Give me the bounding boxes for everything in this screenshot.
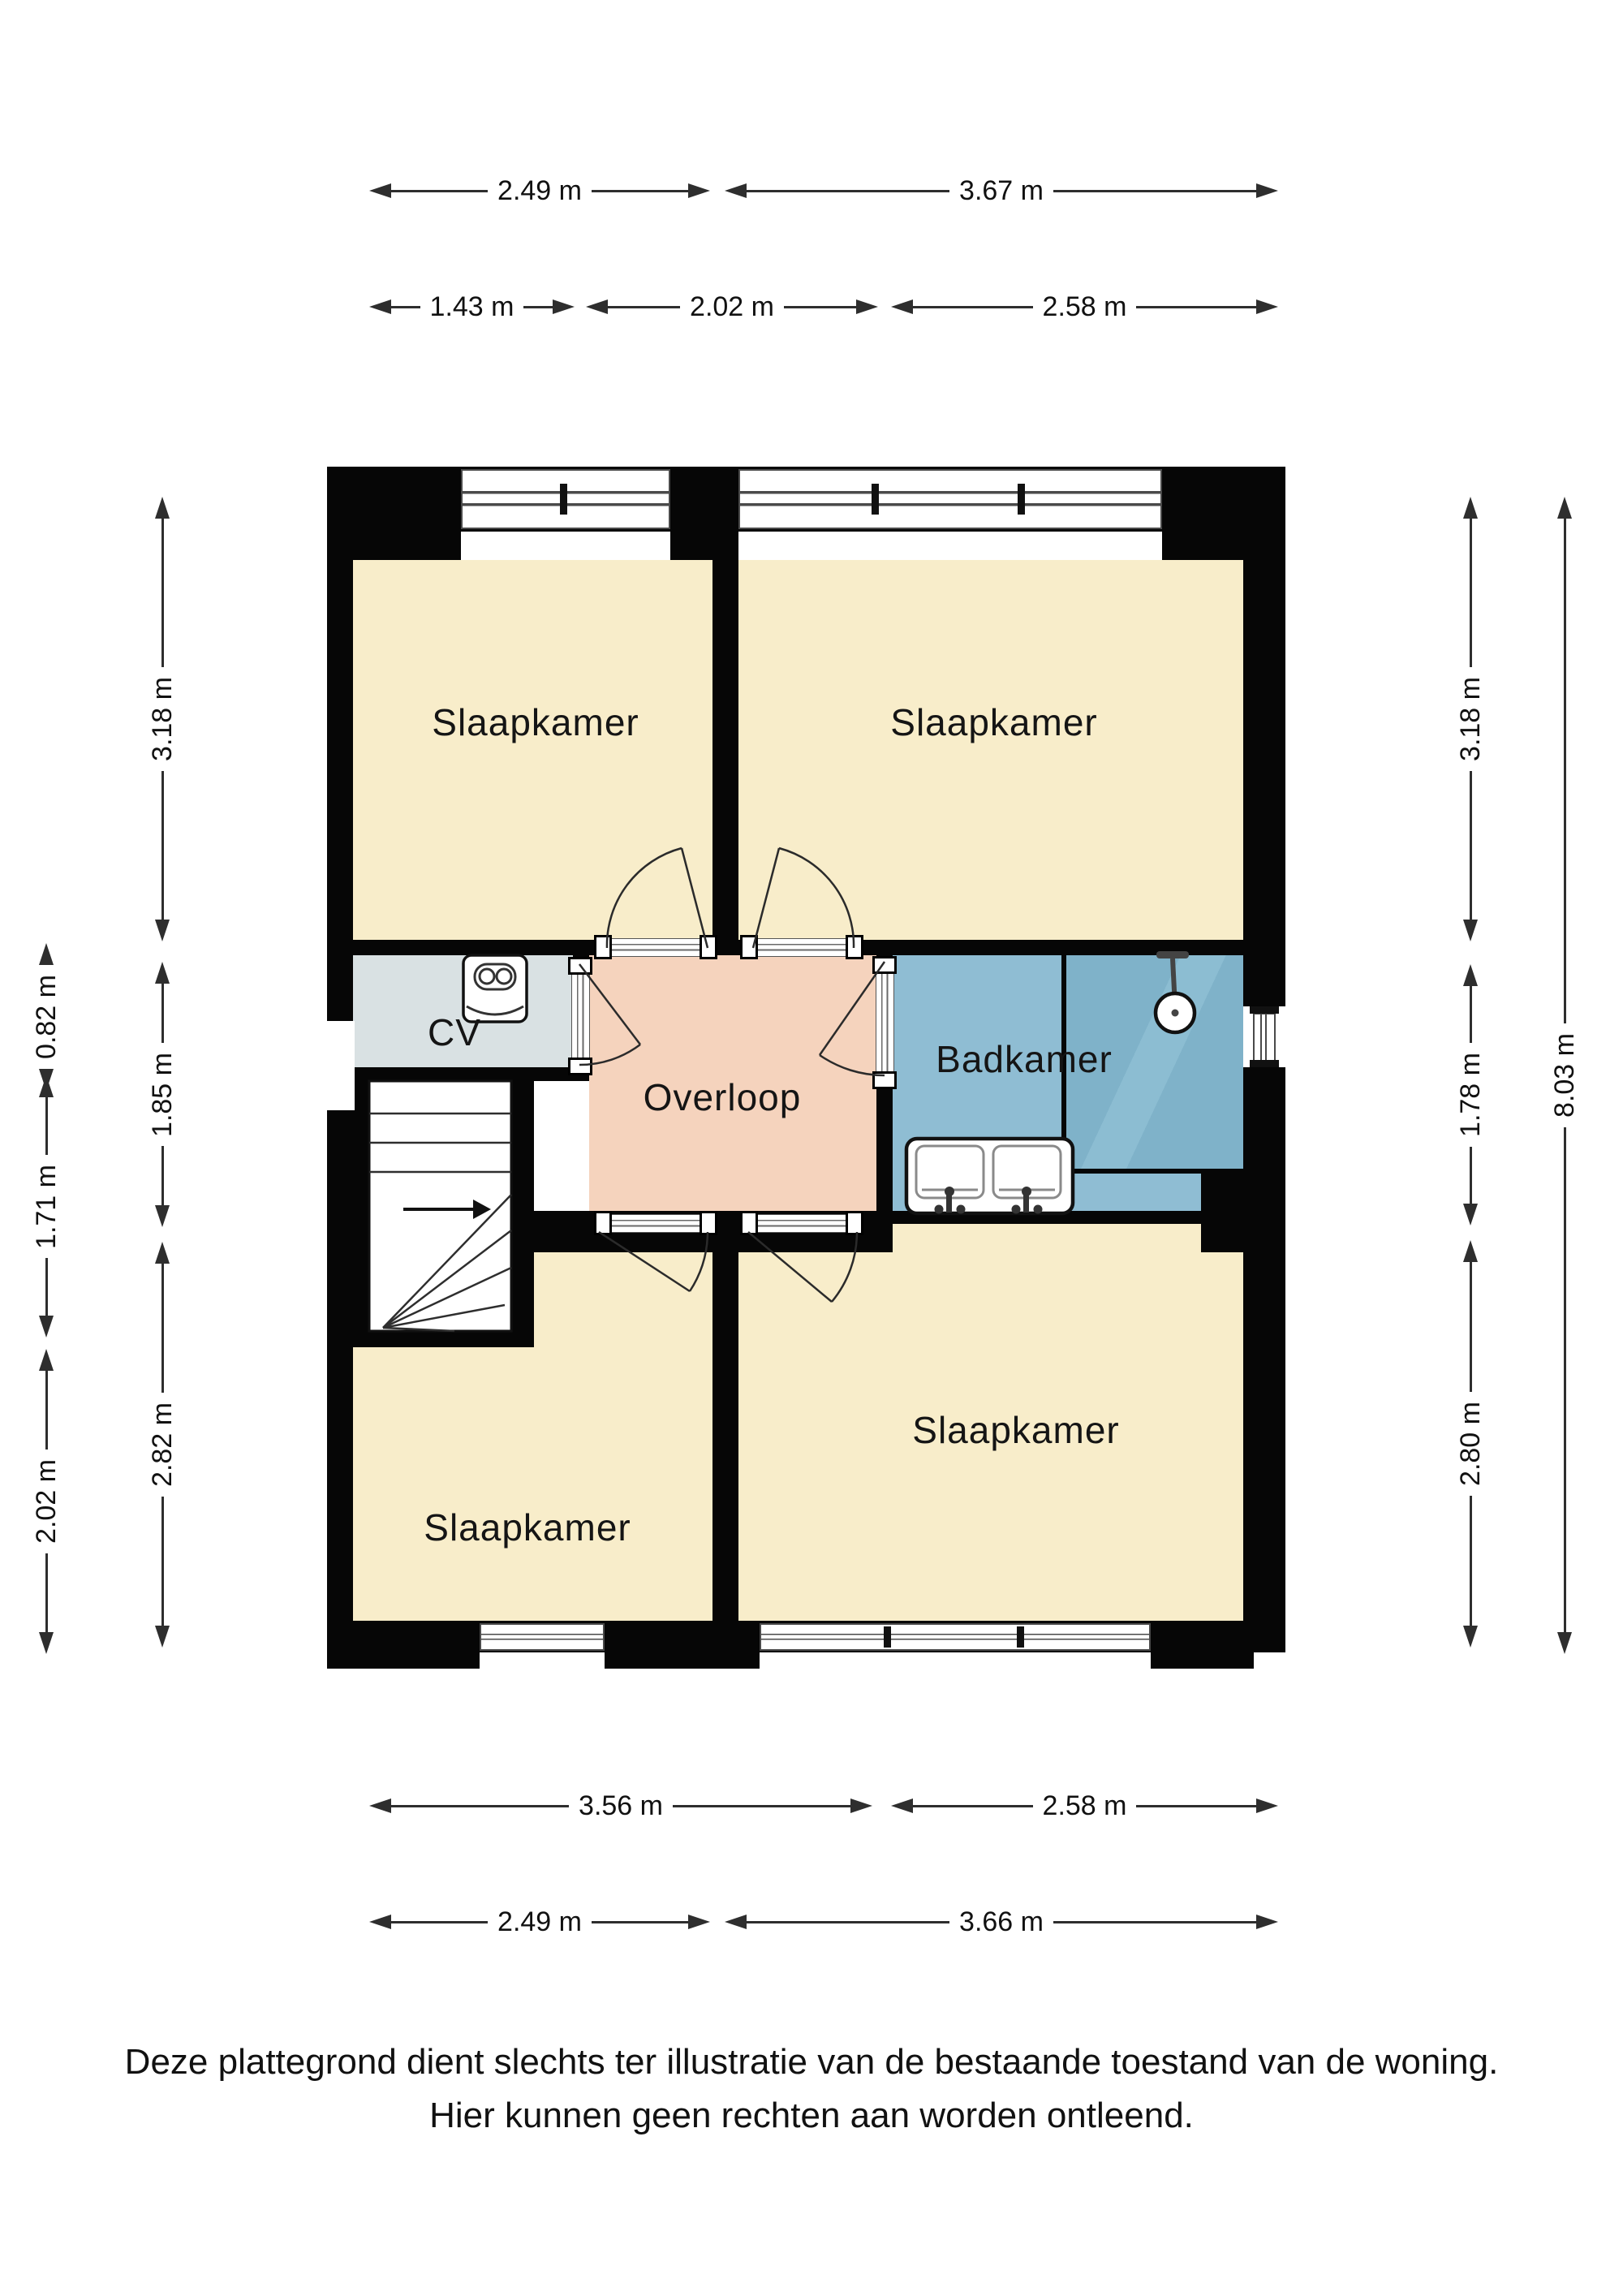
door-opening: [601, 938, 711, 957]
wall-divider-top: [712, 532, 738, 941]
dimension-left-inner: 3.18 m: [151, 497, 174, 941]
dimension-top: 1.43 m: [369, 295, 575, 318]
dim-label: 3.56 m: [569, 1790, 673, 1822]
door-jamb: [700, 1211, 717, 1235]
dim-label: 2.80 m: [1455, 1392, 1487, 1496]
room-label-bedroom-bottom-left: Slaapkamer: [424, 1506, 631, 1549]
dimension-bottom: 2.49 m: [369, 1910, 710, 1933]
wall-pier: [1162, 467, 1285, 560]
door-jamb: [846, 935, 863, 959]
door-jamb: [740, 1211, 758, 1235]
dimension-top: 3.67 m: [725, 179, 1278, 202]
door-jamb: [594, 1211, 612, 1235]
dimension-right-outer: 8.03 m: [1553, 497, 1576, 1654]
dim-label: 2.58 m: [1033, 291, 1137, 323]
dimension-top: 2.49 m: [369, 179, 710, 202]
dimension-left-inner: 2.82 m: [151, 1242, 174, 1648]
dimension-left-outer: 0.82 m: [35, 943, 58, 1062]
door-jamb: [740, 935, 758, 959]
dim-label: 2.49 m: [488, 175, 592, 207]
dim-label: 1.71 m: [31, 1155, 62, 1259]
room-bedroom-bottom-right-upper-part: [893, 1224, 1201, 1252]
dim-label: 2.82 m: [147, 1393, 179, 1497]
window: [738, 469, 1162, 529]
window-mullion: [1017, 1626, 1024, 1648]
wall-bathroom-bottom: [893, 1211, 1201, 1224]
window-mullion: [884, 1626, 891, 1648]
dimension-top: 2.58 m: [891, 295, 1278, 318]
wall-stair-right: [511, 1081, 534, 1347]
wall-pier: [327, 467, 461, 560]
window-mullion: [1018, 484, 1025, 515]
shower-partition-line: [1061, 1169, 1201, 1174]
dimension-right-inner: 2.80 m: [1459, 1240, 1482, 1648]
wall-notch: [327, 1021, 355, 1110]
dim-label: 2.58 m: [1033, 1790, 1137, 1822]
dim-label: 1.78 m: [1455, 1043, 1487, 1147]
door-jamb: [568, 1058, 592, 1075]
wall-stair-bottom: [327, 1331, 534, 1347]
dim-label: 3.66 m: [949, 1906, 1053, 1938]
dim-label: 3.18 m: [1455, 667, 1487, 771]
room-bedroom-top-right: [738, 560, 1243, 940]
dim-label: 2.49 m: [488, 1906, 592, 1938]
room-label-bedroom-top-right: Slaapkamer: [890, 700, 1097, 744]
door-jamb: [700, 935, 717, 959]
door-opening: [876, 962, 894, 1078]
wall-divider-bottom: [712, 1252, 738, 1621]
room-label-bedroom-top-left: Slaapkamer: [432, 700, 639, 744]
dimension-bottom: 2.58 m: [891, 1794, 1278, 1817]
dimension-bottom: 3.66 m: [725, 1910, 1278, 1933]
wall-pier: [327, 1621, 480, 1669]
door-jamb: [568, 957, 592, 975]
room-bedroom-top-left: [353, 560, 712, 940]
dim-label: 0.82 m: [31, 965, 62, 1069]
door-opening: [571, 963, 590, 1068]
wall-stair-left: [327, 1081, 369, 1347]
door-opening: [601, 1214, 711, 1233]
window-mullion: [560, 484, 567, 515]
window: [760, 1623, 1151, 1651]
dimension-right-inner: 3.18 m: [1459, 497, 1482, 941]
dimension-top: 2.02 m: [586, 295, 878, 318]
dim-label: 2.02 m: [31, 1450, 62, 1553]
disclaimer-line-2: Hier kunnen geen rechten aan worden ontl…: [0, 2096, 1623, 2136]
floorplan: Slaapkamer Slaapkamer CV Overloop Badkam…: [0, 0, 1623, 2296]
dimension-left-outer: 1.71 m: [35, 1075, 58, 1338]
dim-label: 3.18 m: [147, 667, 179, 771]
dim-label: 3.67 m: [949, 175, 1053, 207]
window: [480, 1623, 605, 1651]
door-jamb: [594, 935, 612, 959]
window-mullion: [872, 484, 879, 515]
stairs-direction-arrow-icon: [403, 1200, 491, 1219]
dimension-left-inner: 1.85 m: [151, 962, 174, 1227]
door-opening: [745, 938, 855, 957]
door-jamb: [872, 956, 897, 974]
room-label-badkamer: Badkamer: [936, 1037, 1113, 1081]
dim-label: 8.03 m: [1549, 1023, 1581, 1127]
wall-pier: [1151, 1621, 1254, 1669]
door-opening: [745, 1214, 855, 1233]
dim-label: 1.85 m: [147, 1043, 179, 1147]
window-mullion: [1250, 1060, 1279, 1067]
room-label-overloop: Overloop: [644, 1075, 802, 1119]
room-label-cv: CV: [428, 1010, 481, 1054]
wall-corner-mass-bathroom: [1201, 1169, 1285, 1252]
dimension-right-inner: 1.78 m: [1459, 964, 1482, 1226]
wall-cv-bottom: [353, 1067, 589, 1081]
window-mullion: [1250, 1006, 1279, 1014]
dim-label: 1.43 m: [420, 291, 524, 323]
door-jamb: [846, 1211, 863, 1235]
dim-label: 2.02 m: [680, 291, 784, 323]
disclaimer-line-1: Deze plattegrond dient slechts ter illus…: [0, 2042, 1623, 2083]
dimension-bottom: 3.56 m: [369, 1794, 872, 1817]
wall-pier: [605, 1621, 760, 1669]
door-jamb: [872, 1071, 897, 1089]
window: [1253, 1013, 1276, 1062]
room-label-bedroom-bottom-right: Slaapkamer: [912, 1408, 1119, 1452]
dimension-left-outer: 2.02 m: [35, 1349, 58, 1654]
